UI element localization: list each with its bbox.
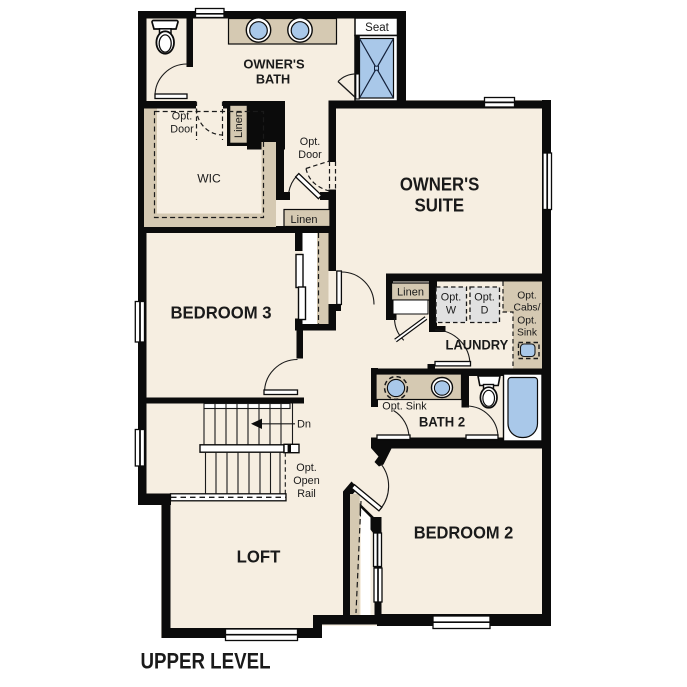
svg-text:Linen: Linen [397,287,424,299]
svg-text:Door: Door [170,124,194,136]
svg-text:Opt.: Opt. [300,136,320,148]
svg-text:D: D [481,305,489,317]
svg-text:Door: Door [298,149,322,161]
svg-text:OWNER'S: OWNER'S [243,58,304,72]
svg-text:Open: Open [293,475,319,487]
svg-text:W: W [446,305,457,317]
svg-text:Dn: Dn [297,419,311,431]
svg-text:LAUNDRY: LAUNDRY [446,337,509,352]
svg-text:Sink: Sink [517,328,538,339]
svg-text:Seat: Seat [365,22,389,34]
svg-text:BEDROOM 2: BEDROOM 2 [414,523,514,543]
svg-text:SUITE: SUITE [414,195,464,215]
svg-text:OWNER'S: OWNER'S [400,175,480,195]
svg-text:BATH 2: BATH 2 [419,414,465,430]
svg-text:Opt.: Opt. [296,462,316,474]
svg-text:BATH: BATH [256,73,290,87]
svg-text:LOFT: LOFT [237,547,281,567]
svg-text:WIC: WIC [197,172,221,186]
svg-text:Linen: Linen [233,111,245,138]
svg-text:UPPER LEVEL: UPPER LEVEL [141,649,271,674]
svg-text:Opt.: Opt. [172,111,192,123]
svg-text:Opt.: Opt. [517,291,536,302]
svg-text:Opt.: Opt. [441,292,461,304]
svg-text:Opt. Sink: Opt. Sink [382,401,427,413]
svg-text:Opt.: Opt. [474,292,494,304]
svg-text:Cabs/: Cabs/ [514,303,541,314]
svg-text:Rail: Rail [297,488,316,500]
svg-text:Linen: Linen [291,214,318,226]
svg-text:Opt.: Opt. [517,316,536,327]
svg-text:BEDROOM 3: BEDROOM 3 [171,303,272,323]
